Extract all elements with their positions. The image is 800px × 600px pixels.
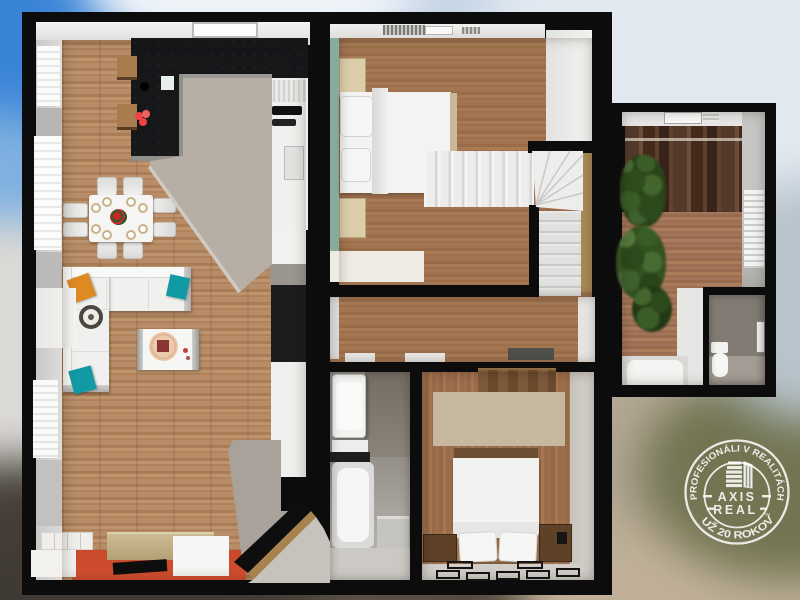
svg-text:TM: TM [764,512,771,517]
svg-text:REAL: REAL [713,503,757,517]
svg-text:AXIS: AXIS [718,490,757,504]
